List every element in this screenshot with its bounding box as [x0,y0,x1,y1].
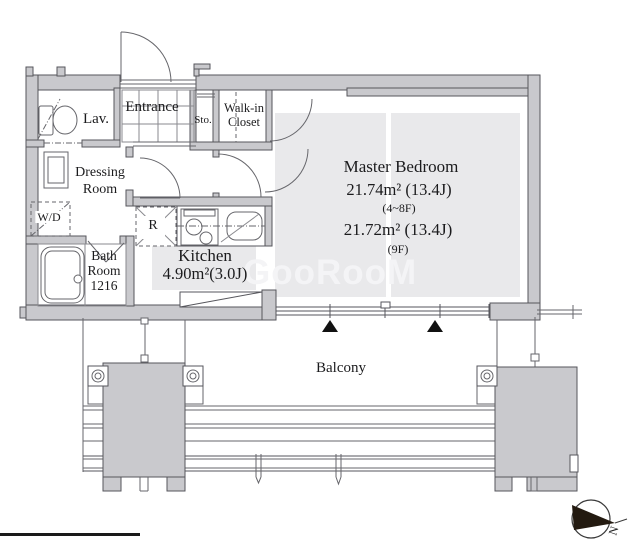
entrance-label: Entrance [125,100,178,115]
lav-label: Lav. [83,112,109,127]
south-windows [276,302,490,318]
compass-icon: N [572,500,627,538]
bedroom-floors1-label: (4~8F) [382,202,415,214]
bedroom-area1-label: 21.74m² (13.4J) [346,182,451,199]
walkin-closet-label-1: Walk-in [224,102,264,115]
toilet-icon [38,99,77,139]
watermark: GooRooM [243,253,417,293]
bathroom-label-3: 1216 [91,279,118,293]
scale-bar [0,533,140,536]
refrigerator-label: R [148,219,157,233]
bedroom-area2-label: 21.72m² (13.4J) [344,221,453,238]
walkin-closet-label-2: Closet [228,116,260,129]
entrance-door-icon [121,32,171,82]
bathroom-label-1: Bath [91,249,117,263]
washer-dryer-label: W/D [35,211,62,223]
bathroom-label-2: Room [87,264,120,278]
dressing-door-arc [140,158,180,198]
balcony-label: Balcony [316,361,366,376]
dressing-room-label-2: Room [83,183,117,197]
bedroom-floors2-label: (9F) [388,243,409,255]
bathtub-icon [41,247,84,303]
compass-n-label: N [606,524,622,537]
window-triangles [322,320,443,332]
storage-shelf [197,94,215,97]
floorplan-canvas: N GooRooM Lav. Entrance Sto. Walk-in Clo… [0,0,633,542]
bedroom-label: Master Bedroom [344,158,459,175]
kitchen-sliding-door [180,292,262,307]
dressing-room-label-1: Dressing [75,166,125,180]
washbasin-icon [44,152,68,188]
storage-label: Sto. [194,115,211,126]
balcony-pillar-left [88,363,203,491]
kitchen-label: Kitchen [178,247,232,264]
kitchen-area-label: 4.90m²(3.0J) [163,266,248,283]
bedroom-door-arc-hall [218,154,261,197]
